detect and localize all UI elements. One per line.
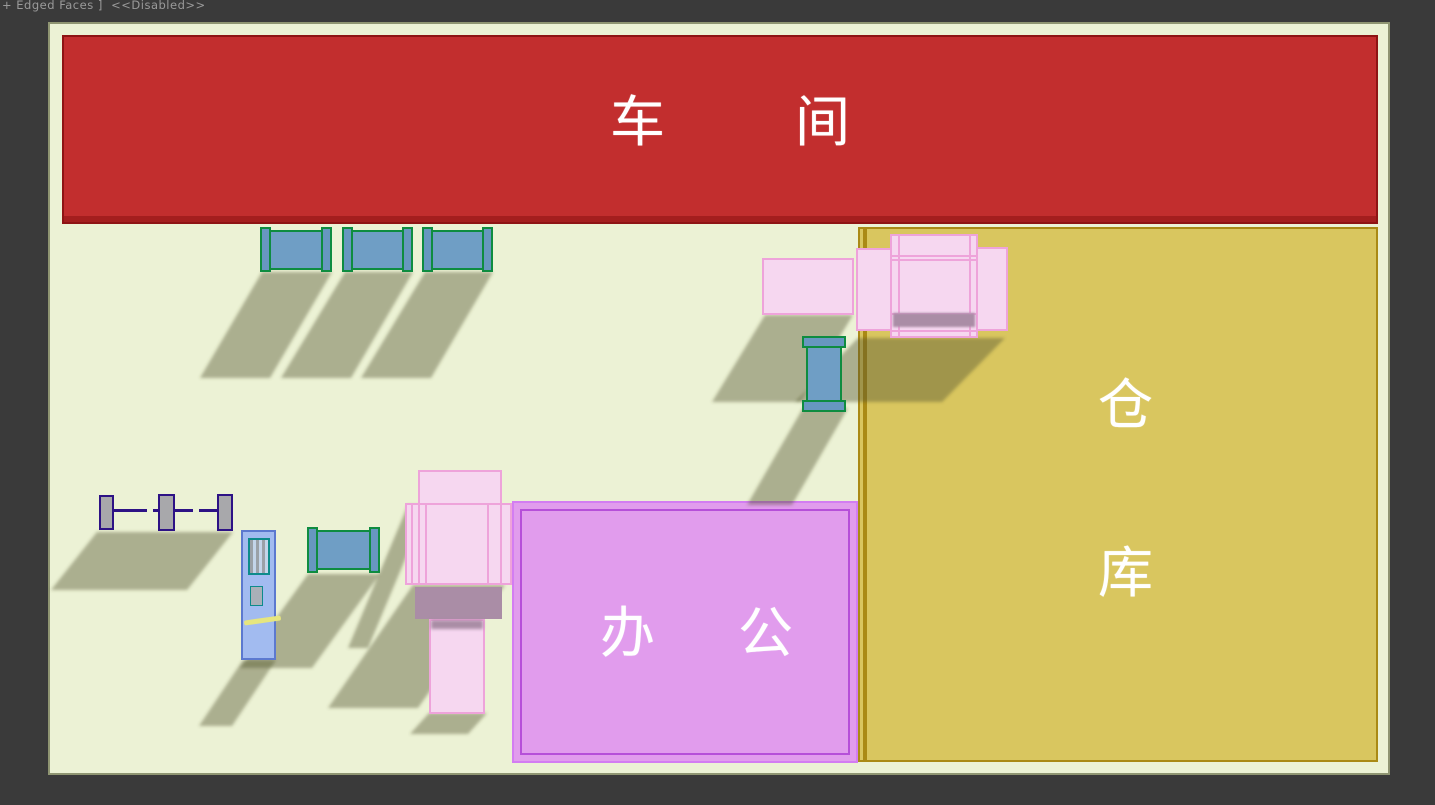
3d-viewport[interactable]: + Edged Faces ] <<Disabled>> — [0, 0, 1435, 805]
roller-cap — [321, 227, 332, 272]
vertical-roller[interactable] — [802, 336, 846, 412]
machine-top-block — [418, 470, 502, 506]
panel-lever — [244, 615, 281, 625]
viewport-status-label[interactable]: + Edged Faces ] <<Disabled>> — [2, 0, 206, 12]
label-office-char-1: 办 — [600, 606, 655, 661]
roller-body — [351, 230, 404, 270]
machine-inner-shadow — [893, 313, 975, 327]
roller-conveyor-3[interactable] — [422, 227, 493, 272]
roller-cap — [369, 527, 380, 573]
zone-office[interactable] — [512, 501, 858, 763]
roller-conveyor-2[interactable] — [342, 227, 413, 272]
roller-body — [316, 530, 371, 570]
axle-wheel-2[interactable] — [158, 494, 175, 531]
pink-slab-machine[interactable] — [762, 258, 854, 315]
panel-button-block — [250, 586, 263, 606]
axle-wheel-1[interactable] — [99, 495, 114, 530]
roller-cap — [402, 227, 413, 272]
label-warehouse-char-2: 库 — [1098, 546, 1153, 601]
pink-cross-machine-right[interactable] — [856, 234, 1008, 338]
roller-body — [269, 230, 323, 270]
label-workshop-char-1: 车 — [610, 95, 665, 150]
machine-leg-shadow — [431, 620, 483, 629]
pink-cross-machine-left[interactable] — [405, 470, 515, 734]
roller-cap — [482, 227, 493, 272]
label-workshop-char-2: 间 — [795, 95, 850, 150]
roller-cap — [802, 400, 846, 412]
panel-vent-grille — [248, 538, 270, 575]
roller-conveyor-1[interactable] — [260, 227, 332, 272]
machine-wing-right — [976, 247, 1008, 331]
label-warehouse-char-1: 仓 — [1098, 378, 1153, 433]
label-office-char-2: 公 — [738, 606, 793, 661]
roller-body — [806, 346, 842, 402]
control-panel[interactable] — [241, 530, 276, 660]
machine-leg — [429, 619, 485, 714]
roller-body — [431, 230, 484, 270]
roller-conveyor-4[interactable] — [307, 527, 380, 573]
axle-wheel-3[interactable] — [217, 494, 233, 531]
zone-workshop[interactable] — [62, 35, 1378, 224]
machine-wing-left — [856, 248, 892, 331]
machine-shadowed-block — [415, 587, 502, 619]
machine-cross-band — [405, 503, 512, 585]
office-inner-edge — [520, 509, 850, 755]
